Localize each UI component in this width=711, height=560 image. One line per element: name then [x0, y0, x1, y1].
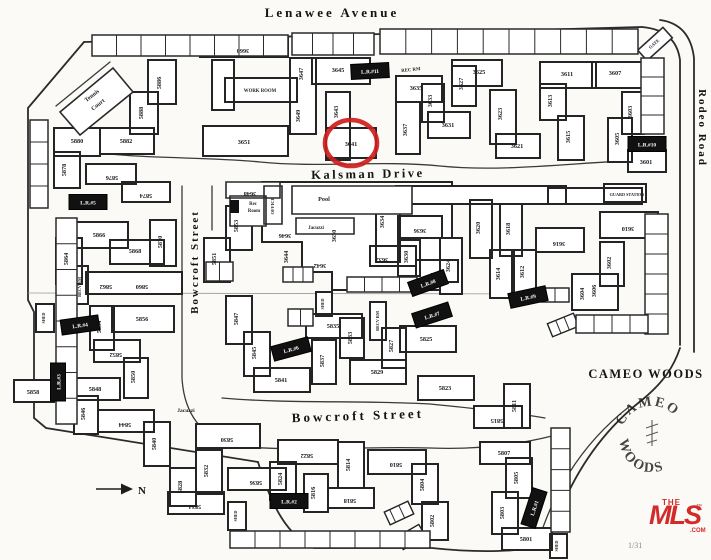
unit-label: 3641: [345, 141, 358, 148]
unit-label: 5825: [420, 336, 433, 343]
unit-label: 3625: [473, 69, 486, 76]
unit-label: 3606: [591, 285, 598, 298]
mls-logo-com: .COM: [690, 528, 706, 534]
amenity-label: SHED: [554, 540, 559, 551]
amenity-label: REC RM: [401, 67, 421, 74]
unit-label: 3603: [627, 106, 634, 119]
unit-label: 3605: [614, 133, 621, 146]
unit-label: 3620: [475, 222, 482, 235]
unit-label: 5850: [130, 371, 137, 384]
unit-label: 3602: [606, 257, 613, 270]
svg-text:L.R.#5: L.R.#5: [80, 200, 96, 206]
unit-label: 3642: [314, 262, 327, 269]
unit-label: 3615: [565, 131, 572, 144]
unit-label: 5845: [251, 347, 258, 360]
amenity-label: RECV RM: [77, 277, 82, 297]
building-outlines: [14, 27, 672, 558]
unit-label: 5832: [203, 465, 210, 478]
unit-label: 5837: [319, 355, 326, 368]
unit-label: 3618: [505, 223, 512, 236]
street-label: Bowcroft Street: [291, 406, 424, 426]
amenity-label: Pool: [318, 196, 330, 203]
laundry-room-marker: L.R.#3: [51, 363, 66, 401]
unit-label: 5810: [390, 461, 403, 468]
unit-label: 5862: [100, 283, 113, 290]
unit-label: 5848: [89, 386, 102, 393]
north-label: N: [138, 485, 146, 497]
site-map-page: Lenawee AvenueKalsman DriveBowcroft Stre…: [0, 0, 711, 560]
unit-label: 3607: [609, 70, 622, 77]
unit-label: 5860: [136, 283, 149, 290]
unit-label: 3616: [553, 240, 566, 247]
unit-label: 5805: [513, 472, 520, 485]
page-note: 1/31: [628, 541, 642, 550]
unit-label: 5858: [27, 389, 40, 396]
unit-label: 5868: [129, 248, 142, 255]
amenity-label: Jacuzzi: [177, 408, 195, 414]
unit-label: 5853: [233, 220, 240, 233]
laundry-room-marker: L.R.#6: [271, 337, 312, 361]
site-map: Lenawee AvenueKalsman DriveBowcroft Stre…: [0, 0, 711, 560]
svg-text:L.R.#10: L.R.#10: [638, 142, 657, 148]
logo-word-bottom: WOODS: [615, 437, 666, 476]
unit-label: 5802: [429, 515, 436, 528]
unit-label: 3630: [403, 251, 410, 264]
unit-label: 5814: [345, 458, 352, 471]
unit-label: 5844: [118, 421, 131, 428]
unit-label: 5886: [156, 77, 163, 90]
amenity-label: Jacuzzi: [308, 226, 324, 231]
unit-label: 3612: [519, 266, 526, 279]
unit-label: 5874: [139, 192, 152, 199]
unit-label: 3604: [579, 287, 586, 300]
unit-label: 5822: [301, 452, 314, 459]
amenity-label: RECV RM: [375, 311, 380, 331]
unit-label: 3611: [561, 71, 573, 78]
unit-label: 5880: [71, 138, 84, 145]
amenity-label: SHED: [320, 298, 325, 309]
unit-label: 5841: [275, 377, 288, 384]
unit-label: 5830: [221, 436, 234, 443]
unit-label: 5851: [211, 253, 218, 266]
unit-label: 5828: [177, 481, 184, 494]
unit-label: 3645: [332, 67, 345, 74]
unit-label: 3631: [442, 122, 455, 129]
unit-label: 5824: [277, 472, 284, 485]
svg-text:L.R.#3: L.R.#3: [56, 374, 62, 390]
unit-label: 5876: [106, 174, 119, 181]
unit-label: 5864: [63, 252, 70, 265]
mls-logo-main: MLS: [649, 502, 700, 529]
unit-label: 3613: [547, 95, 554, 108]
unit-label: 3650: [331, 230, 338, 243]
unit-label: 3643: [333, 106, 340, 119]
unit-label: 5888: [138, 107, 145, 120]
unit-label: 5804: [419, 478, 426, 491]
svg-text:L.R.#2: L.R.#2: [281, 499, 297, 505]
unit-label: 5840: [151, 438, 158, 451]
unit-label: 3623: [497, 108, 504, 121]
unit-label: 3649: [295, 110, 302, 123]
unit-label: 5811: [511, 400, 518, 412]
unit-label: 5836: [250, 479, 263, 486]
unit-label: 3632: [376, 256, 389, 263]
unit-label: 5866: [93, 232, 106, 239]
logo-crest: [646, 420, 658, 446]
unit-label: 5801: [520, 536, 533, 543]
unit-label: 3624: [445, 259, 452, 272]
unit-label: 5829: [371, 369, 384, 376]
unit-label: 3637: [402, 124, 409, 137]
unit-label: 5852: [110, 351, 123, 358]
unit-label: 3651: [238, 139, 251, 146]
unit-label: 3648: [244, 190, 257, 197]
amenity-label: WORK ROOM: [244, 89, 277, 94]
amenity-label: GUARD STATION: [610, 192, 645, 197]
unit-label: 3621: [511, 143, 524, 150]
unit-label: 5834: [188, 503, 201, 510]
unit-label: 5818: [344, 497, 357, 504]
unit-label: 5856: [136, 316, 149, 323]
amenity-label: SHED: [233, 510, 238, 521]
unit-label: 5878: [61, 164, 68, 177]
unit-label: 5846: [80, 408, 87, 421]
cameo-woods-area: CAMEO WOODS CAMEO WOODS: [588, 367, 703, 476]
street-label: Kalsman Drive: [311, 166, 425, 182]
unit-label: 5816: [310, 487, 317, 500]
mls-logo-tm: ™: [696, 504, 702, 510]
unit-label: 5870: [157, 236, 164, 249]
svg-text:WOODS: WOODS: [615, 437, 666, 476]
tennis-court: [60, 68, 133, 135]
street-label: Lenawee Avenue: [265, 5, 400, 20]
area-label: CAMEO WOODS: [588, 367, 703, 381]
unit-label: 3634: [379, 215, 386, 228]
utility-box: [230, 200, 239, 213]
unit-label: 3635: [410, 85, 423, 92]
unit-label: 5815: [491, 417, 504, 424]
svg-text:L.R.#11: L.R.#11: [361, 69, 380, 76]
laundry-room-marker: L.R.#5: [69, 195, 107, 210]
unit-label: 3646: [279, 232, 292, 239]
unit-label: 5803: [499, 507, 506, 520]
unit-label: 5835: [327, 323, 340, 330]
laundry-room-marker: L.R.#2: [270, 494, 308, 509]
unit-label: 3647: [298, 68, 305, 81]
amenity-label: OFFICE: [270, 197, 275, 214]
street-label: Rodeo Road: [696, 89, 708, 167]
amenity-label: Rec: [249, 202, 258, 207]
unit-label: 3644: [283, 250, 290, 263]
unit-label: 5833: [347, 332, 354, 345]
unit-label: 3633: [427, 95, 434, 108]
unit-label: 3636: [414, 227, 427, 234]
amenity-label: SHED: [41, 312, 46, 323]
unit-label: 5827: [388, 340, 395, 353]
unit-label: 5882: [120, 138, 133, 145]
mls-logo: THE MLS ™ .COM: [649, 497, 711, 549]
north-arrow: N: [96, 484, 146, 498]
unit-label: 3614: [495, 267, 502, 280]
street-label: Bowcroft Street: [189, 210, 201, 314]
unit-label: 5807: [498, 450, 511, 457]
unit-label: 3610: [622, 225, 635, 232]
unit-label: 5823: [439, 385, 452, 392]
unit-label: 5847: [233, 313, 240, 326]
unit-label: 3601: [640, 159, 653, 166]
unit-label: 3660: [237, 47, 250, 54]
unit-label: 3627: [458, 78, 465, 91]
amenity-label: Room: [248, 209, 260, 214]
laundry-room-marker: L.R.#7: [412, 302, 453, 328]
laundry-room-marker: L.R.#10: [628, 137, 666, 152]
laundry-room-marker: L.R.#11: [351, 63, 390, 80]
